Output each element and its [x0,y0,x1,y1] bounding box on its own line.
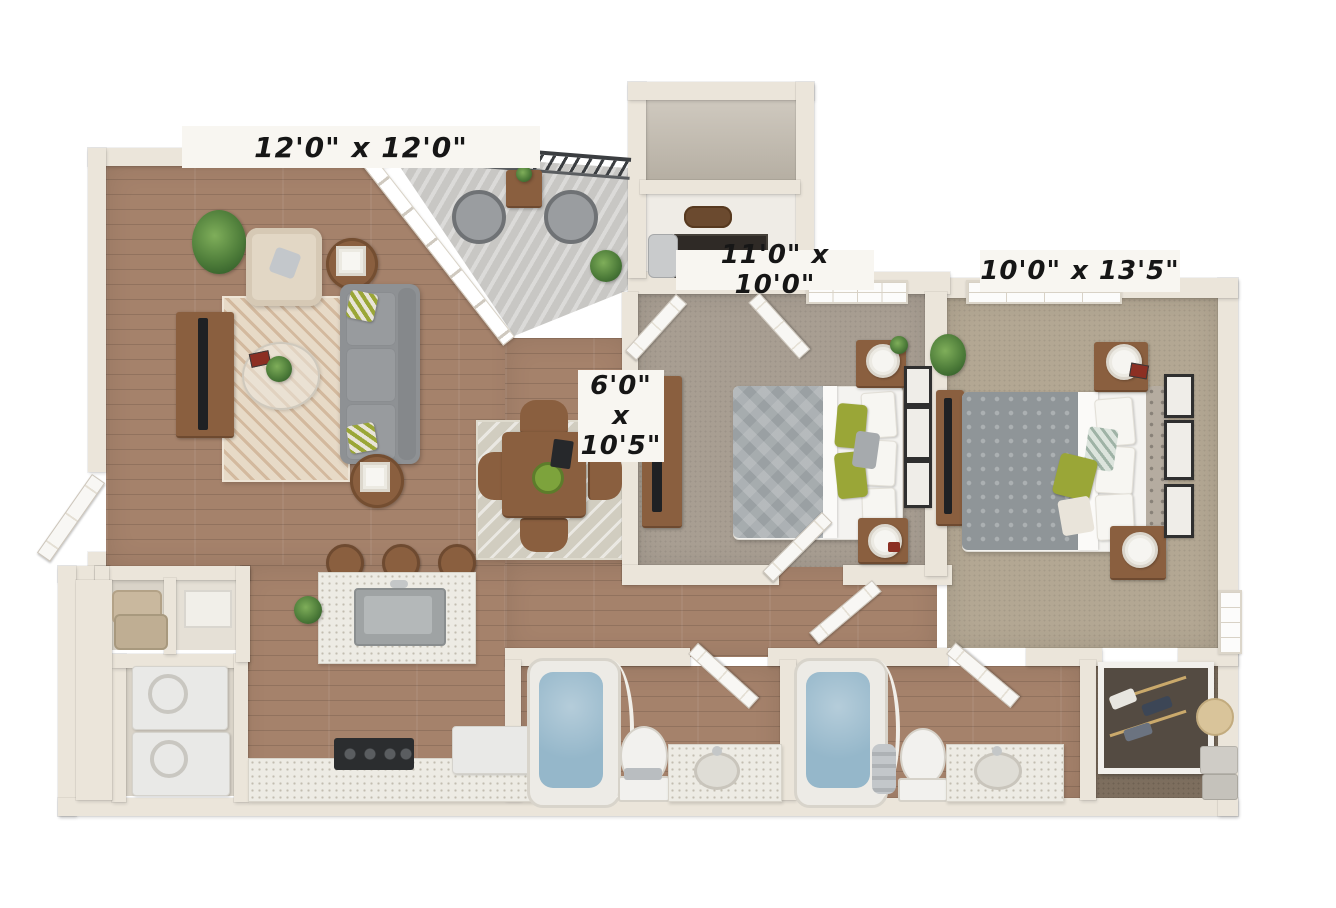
bedroom2-lamp-bottom [1122,532,1158,568]
bedroom1-label: 11'0" x 10'0" [676,250,874,290]
bedroom1-wall-frame-1 [904,366,932,406]
bedroom1-gray-pillow [852,431,881,470]
dining-label-length: 10'5" [581,431,662,461]
balcony-chair-1 [452,190,506,244]
bathroom1-sink [694,752,740,790]
bedroom2-wall-frame-1 [1164,374,1194,418]
balcony-plant [590,250,622,282]
dining-label-separator: x [612,401,630,431]
side-table-lamp-1 [336,246,366,276]
entry-door [37,474,105,562]
hat-box [1196,698,1234,736]
closet-box-2 [1202,774,1238,800]
sofa-back [398,288,416,460]
kitchen-plant [294,596,322,624]
wall-laundry-left [112,654,126,802]
bathroom2-toilet-tank [898,778,948,802]
suitcase-2 [114,614,168,650]
bathroom2-towels [872,744,896,794]
bedroom2-tv [944,398,952,514]
sofa-pillow-bottom [346,422,378,454]
bedroom1-wall-frame-2 [904,406,932,460]
sofa-pillow-top [345,289,378,322]
cooktop [334,738,414,770]
wall-outer-right [1218,278,1238,816]
storage-box [184,590,232,628]
wall-storage-top [628,82,814,100]
floor-plan: 12'0" x 12'0" 11'0" x 10'0" 10'0" x 13'5… [0,0,1336,908]
wall-storagecloset-right [236,566,250,662]
island-faucet [390,580,408,588]
coffee-table-plant [266,356,292,382]
bathroom1-faucet [712,746,722,756]
dining-nook-label: 6'0" x 10'5" [578,370,664,462]
bedroom1-wall-frame-3 [904,460,932,508]
bedroom2-corner-plant [930,334,966,376]
bathroom1-tub-water [539,672,603,788]
washer-door-ring [148,674,188,714]
wall-outer-left-lower [58,566,76,816]
living-room-label: 12'0" x 12'0" [182,126,540,168]
wall-closet-divider [1080,660,1096,800]
bedroom1-nightstand-plant [890,336,908,354]
side-table-lamp-2 [360,462,390,492]
wall-bedroom1-bottom-left [622,565,779,585]
closet-box-1 [1200,746,1238,774]
living-tv [198,318,208,430]
wall-filler-lower-left [76,580,112,800]
bedroom2-cream-pillow [1057,495,1095,536]
storage-room-floor [646,100,796,182]
wall-living-left-upper [88,148,106,472]
dining-chair-bottom [520,518,568,552]
living-corner-plant [192,210,246,274]
balcony-table-plant [516,166,532,182]
dryer-door-ring [150,740,188,778]
dining-chair-top [520,400,568,434]
duffel-bag [684,206,732,228]
bathroom2-faucet [992,746,1002,756]
wall-storage-divider [640,180,800,194]
dining-label-width: 6'0" [590,371,652,401]
bedroom2-wall-frame-3 [1164,484,1194,538]
bedroom1-lamp-bottom [868,524,902,558]
balcony-chair-2 [544,190,598,244]
bathroom2-tub-water [806,672,870,788]
tablet [550,439,574,470]
refrigerator [452,726,532,774]
wall-laundry-right [234,654,248,802]
bathroom1-towel [624,768,662,780]
bedroom2-book [1129,363,1149,380]
bedroom2-label: 10'0" x 13'5" [980,250,1180,292]
bathroom2-sink [974,752,1022,790]
bedroom2-wall-frame-2 [1164,420,1194,480]
sofa-cushion-2 [346,348,396,402]
bedroom2-side-window [1218,590,1242,654]
bedroom1-red-decor [888,542,900,552]
water-heater [648,234,678,278]
island-sink-basin [364,596,432,634]
bedroom1-duvet [733,386,823,538]
